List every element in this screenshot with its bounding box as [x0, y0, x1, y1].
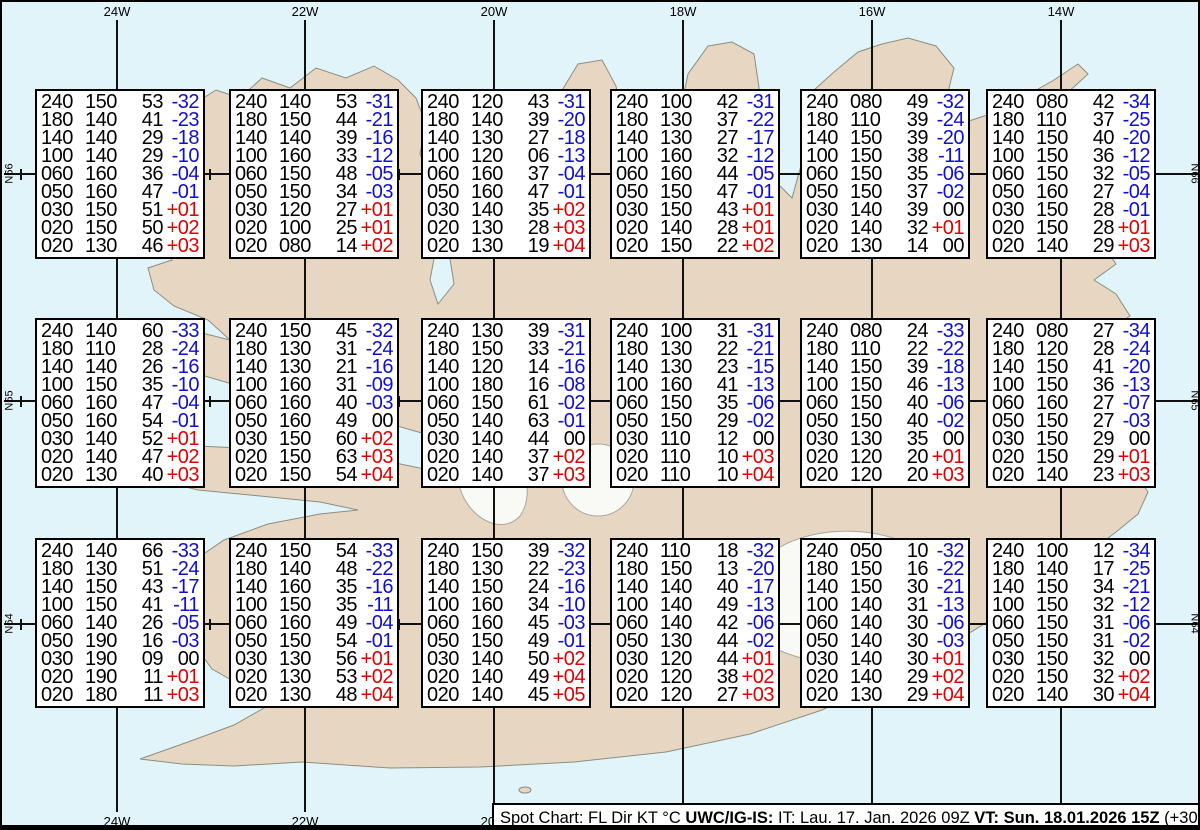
- wind-speed-value: 37: [517, 466, 549, 484]
- latitude-label-right: N66: [1188, 159, 1200, 189]
- wind-direction-value: 140: [1036, 686, 1082, 704]
- wind-speed-value: 40: [131, 466, 163, 484]
- flight-level-value: 020: [41, 237, 85, 255]
- spot-box: 24010012-3418014017-2514015034-211001503…: [986, 538, 1156, 708]
- spot-row: 02014037+03: [427, 466, 585, 484]
- spot-box: 24008027-3418012028-2414015041-201001503…: [986, 318, 1156, 488]
- wind-speed-value: 23: [1082, 466, 1114, 484]
- wind-speed-value: 46: [131, 237, 163, 255]
- temperature-value: +04: [738, 466, 774, 484]
- spot-box: 24015039-3218013022-2314015024-161001603…: [421, 538, 591, 708]
- spot-box: 24008024-3318011022-2214015039-181001504…: [800, 318, 970, 488]
- spot-box: 24010031-3118013022-2114013023-151001604…: [610, 318, 780, 488]
- wind-speed-value: 20: [896, 466, 928, 484]
- spot-row: 02014023+03: [992, 466, 1150, 484]
- spot-box: 24014066-3318013051-2414015043-171001504…: [35, 538, 205, 708]
- flight-level-value: 020: [806, 466, 850, 484]
- flight-level-value: 020: [235, 686, 279, 704]
- wind-direction-value: 150: [660, 237, 706, 255]
- graticule-cross: [20, 396, 22, 407]
- wind-direction-value: 130: [850, 237, 896, 255]
- flight-level-value: 020: [806, 686, 850, 704]
- spot-row: 02012027+03: [616, 686, 774, 704]
- flight-level-value: 020: [992, 686, 1036, 704]
- temperature-value: +02: [738, 237, 774, 255]
- wind-speed-value: 45: [517, 686, 549, 704]
- flight-level-value: 020: [427, 237, 471, 255]
- wind-direction-value: 110: [660, 466, 706, 484]
- wind-speed-value: 22: [706, 237, 738, 255]
- flight-level-value: 020: [427, 466, 471, 484]
- spot-row: 02014030+04: [992, 686, 1150, 704]
- latitude-label-right: N64: [1188, 609, 1200, 639]
- wind-direction-value: 140: [471, 686, 517, 704]
- wind-direction-value: 150: [279, 466, 325, 484]
- bottom-border-bar: [2, 825, 1198, 828]
- wind-direction-value: 130: [85, 466, 131, 484]
- wind-direction-value: 120: [660, 686, 706, 704]
- spot-box: 24015054-3318014048-2214016035-161001503…: [229, 538, 399, 708]
- spot-box: 24012043-3118014039-2014013027-181001200…: [421, 89, 591, 259]
- spot-box: 24014053-3118015044-2114014039-161001603…: [229, 89, 399, 259]
- temperature-value: +03: [738, 686, 774, 704]
- latitude-label-left: N65: [4, 386, 17, 416]
- flight-level-value: 020: [616, 686, 660, 704]
- flight-level-value: 020: [616, 466, 660, 484]
- wind-direction-value: 140: [471, 466, 517, 484]
- spot-box: 24010042-3118013037-2214013027-171001603…: [610, 89, 780, 259]
- longitude-label-top: 14W: [1041, 4, 1081, 19]
- wind-direction-value: 140: [1036, 237, 1082, 255]
- wind-speed-value: 10: [706, 466, 738, 484]
- flight-level-value: 020: [806, 237, 850, 255]
- flight-level-value: 020: [992, 466, 1036, 484]
- wind-direction-value: 130: [85, 237, 131, 255]
- temperature-value: 00: [928, 237, 964, 255]
- spot-row: 02015022+02: [616, 237, 774, 255]
- wind-speed-value: 19: [517, 237, 549, 255]
- graticule-cross: [209, 619, 211, 630]
- temperature-value: +05: [549, 686, 585, 704]
- wind-speed-value: 54: [325, 466, 357, 484]
- temperature-value: +03: [1114, 237, 1150, 255]
- spot-box: 24013039-3118015033-2114012014-161001801…: [421, 318, 591, 488]
- wind-speed-value: 48: [325, 686, 357, 704]
- spot-row: 02013019+04: [427, 237, 585, 255]
- wind-direction-value: 140: [1036, 466, 1082, 484]
- temperature-value: +02: [357, 237, 393, 255]
- spot-row: 02013046+03: [41, 237, 199, 255]
- temperature-value: +03: [163, 466, 199, 484]
- temperature-value: +04: [357, 466, 393, 484]
- wind-speed-value: 27: [706, 686, 738, 704]
- spot-row: 0201301400: [806, 237, 964, 255]
- spot-row: 02013048+04: [235, 686, 393, 704]
- latitude-label-right: N65: [1188, 386, 1200, 416]
- wind-direction-value: 120: [850, 466, 896, 484]
- temperature-value: +04: [357, 686, 393, 704]
- flight-level-value: 020: [616, 237, 660, 255]
- flight-level-value: 020: [41, 686, 85, 704]
- graticule-cross: [20, 169, 22, 180]
- latitude-label-left: N66: [4, 159, 17, 189]
- flight-level-value: 020: [235, 466, 279, 484]
- longitude-label-top: 24W: [97, 4, 137, 19]
- spot-row: 02015054+04: [235, 466, 393, 484]
- spot-row: 02014045+05: [427, 686, 585, 704]
- spot-box: 24008049-3218011039-2414015039-201001503…: [800, 89, 970, 259]
- wind-speed-value: 29: [896, 686, 928, 704]
- offshore-island: [519, 787, 531, 793]
- graticule-cross: [20, 619, 22, 630]
- spot-row: 02012020+03: [806, 466, 964, 484]
- spot-box: 24015045-3218013031-2414013021-161001603…: [229, 318, 399, 488]
- longitude-label-top: 20W: [474, 4, 514, 19]
- flight-level-value: 020: [235, 237, 279, 255]
- latitude-label-left: N64: [4, 609, 17, 639]
- wind-speed-value: 30: [1082, 686, 1114, 704]
- temperature-value: +03: [163, 686, 199, 704]
- wind-speed-value: 29: [1082, 237, 1114, 255]
- spot-row: 02014029+03: [992, 237, 1150, 255]
- graticule-cross: [209, 396, 211, 407]
- longitude-label-top: 22W: [285, 4, 325, 19]
- wind-speed-value: 14: [325, 237, 357, 255]
- spot-box: 24005010-3218015016-2214015030-211001403…: [800, 538, 970, 708]
- spot-row: 02013029+04: [806, 686, 964, 704]
- longitude-label-top: 18W: [663, 4, 703, 19]
- temperature-value: +03: [928, 466, 964, 484]
- spot-chart: 24W24W22W22W20W20W18W18W16W16W14W14WN66N…: [0, 0, 1200, 830]
- spot-box: 24015053-3218014041-2314014029-181001402…: [35, 89, 205, 259]
- flight-level-value: 020: [427, 686, 471, 704]
- wind-direction-value: 080: [279, 237, 325, 255]
- graticule-cross: [209, 169, 211, 180]
- temperature-value: +04: [928, 686, 964, 704]
- wind-speed-value: 14: [896, 237, 928, 255]
- spot-box: 24014060-3318011028-2414014026-161001503…: [35, 318, 205, 488]
- wind-direction-value: 130: [850, 686, 896, 704]
- spot-row: 02018011+03: [41, 686, 199, 704]
- spot-box: 24011018-3218015013-2014014040-171001404…: [610, 538, 780, 708]
- temperature-value: +03: [549, 466, 585, 484]
- temperature-value: +04: [1114, 686, 1150, 704]
- spot-box: 24008042-3418011037-2514015040-201001503…: [986, 89, 1156, 259]
- spot-row: 02013040+03: [41, 466, 199, 484]
- spot-row: 02011010+04: [616, 466, 774, 484]
- wind-direction-value: 130: [279, 686, 325, 704]
- wind-direction-value: 130: [471, 237, 517, 255]
- spot-row: 02008014+02: [235, 237, 393, 255]
- temperature-value: +04: [549, 237, 585, 255]
- temperature-value: +03: [163, 237, 199, 255]
- longitude-label-top: 16W: [852, 4, 892, 19]
- flight-level-value: 020: [992, 237, 1036, 255]
- temperature-value: +03: [1114, 466, 1150, 484]
- wind-direction-value: 180: [85, 686, 131, 704]
- wind-speed-value: 11: [131, 686, 163, 704]
- flight-level-value: 020: [41, 466, 85, 484]
